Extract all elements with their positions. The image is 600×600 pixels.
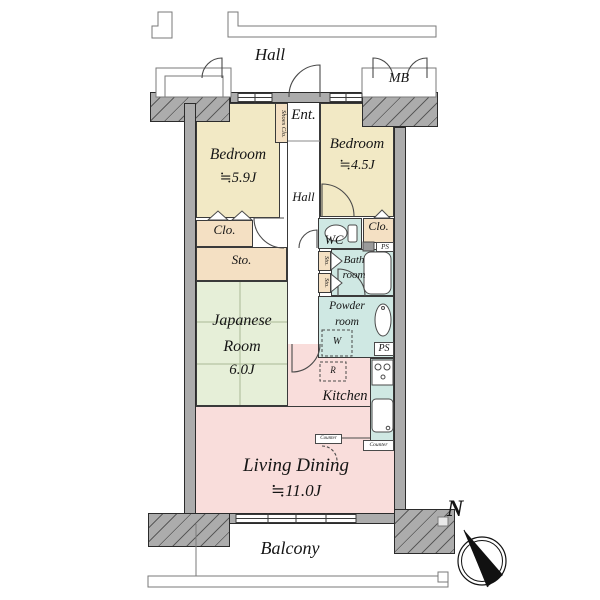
floor-plan: Hall MB Ent. Shoes Clo. Bedroom ≒5.9J Be… [0, 0, 600, 600]
japanese-room-size-label: 6.0J [199, 362, 285, 379]
counter-right-box: Counter [363, 440, 394, 451]
counter-left-box: Counter [315, 434, 342, 444]
storage-left-label: Sto. [196, 253, 287, 268]
compass-icon [458, 530, 506, 587]
hall-top-label: Hall [225, 45, 315, 65]
closet-left-label: Clo. [196, 223, 253, 238]
corridor-railing [152, 12, 436, 38]
living-dining-size-label: ≒11.0J [206, 481, 386, 501]
powder-room-label: Powder room [319, 299, 375, 330]
balcony-label: Balcony [225, 538, 355, 559]
wc-label: WC [318, 233, 350, 247]
storage-small-upper-label: Sto. [319, 252, 330, 270]
bedroom1-size-label: ≒5.9J [196, 170, 280, 187]
bedroom2-size-label: ≒4.5J [320, 158, 394, 174]
ps-lower-label: PS [378, 343, 389, 355]
duct-box [363, 242, 374, 251]
washbasin-icon [375, 304, 391, 336]
kitchen-label: Kitchen [314, 388, 376, 405]
plan-linework [0, 0, 600, 600]
storage-small-lower-label: Sto. [319, 274, 330, 292]
closet-right-label: Clo. [363, 220, 394, 234]
japanese-room-name-label: Japanese Room [199, 308, 285, 359]
stove-icon [372, 360, 393, 385]
fridge-label: R [320, 365, 346, 375]
ps-upper-box: PS [376, 242, 394, 252]
north-label: N [440, 496, 470, 522]
ps-upper-label: PS [381, 243, 389, 251]
entrance-label: Ent. [287, 107, 320, 124]
bathroom-label: Bath room [333, 253, 375, 283]
shoes-closet-label: Shoes Clo. [276, 105, 287, 142]
bedroom2-name-label: Bedroom [320, 136, 394, 153]
counter-left-label: Counter [320, 436, 336, 442]
bedroom1-name-label: Bedroom [196, 146, 280, 164]
washer-label: W [322, 336, 352, 348]
ps-lower-box: PS [374, 342, 394, 356]
mb-label: MB [362, 71, 436, 87]
living-dining-name-label: Living Dining [206, 455, 386, 477]
counter-right-label: Counter [369, 442, 387, 448]
hall-inner-label: Hall [287, 190, 320, 204]
